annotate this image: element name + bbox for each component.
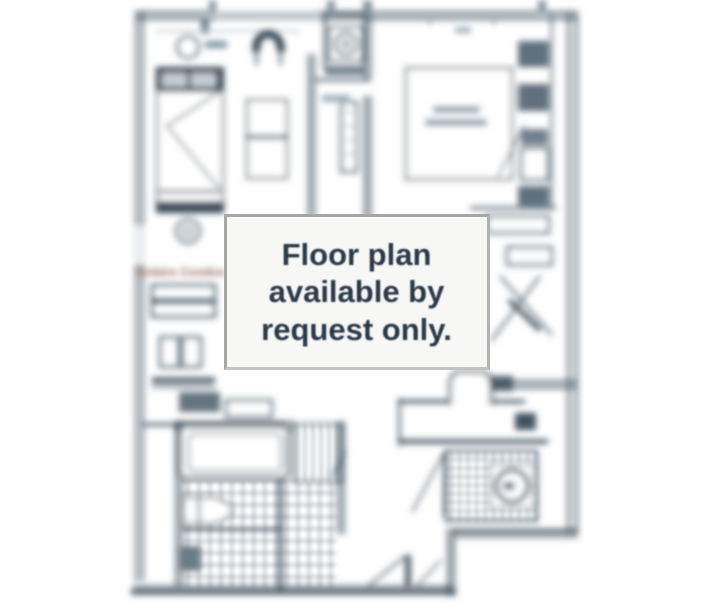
svg-text:Solaire Condos: Solaire Condos	[137, 265, 225, 279]
